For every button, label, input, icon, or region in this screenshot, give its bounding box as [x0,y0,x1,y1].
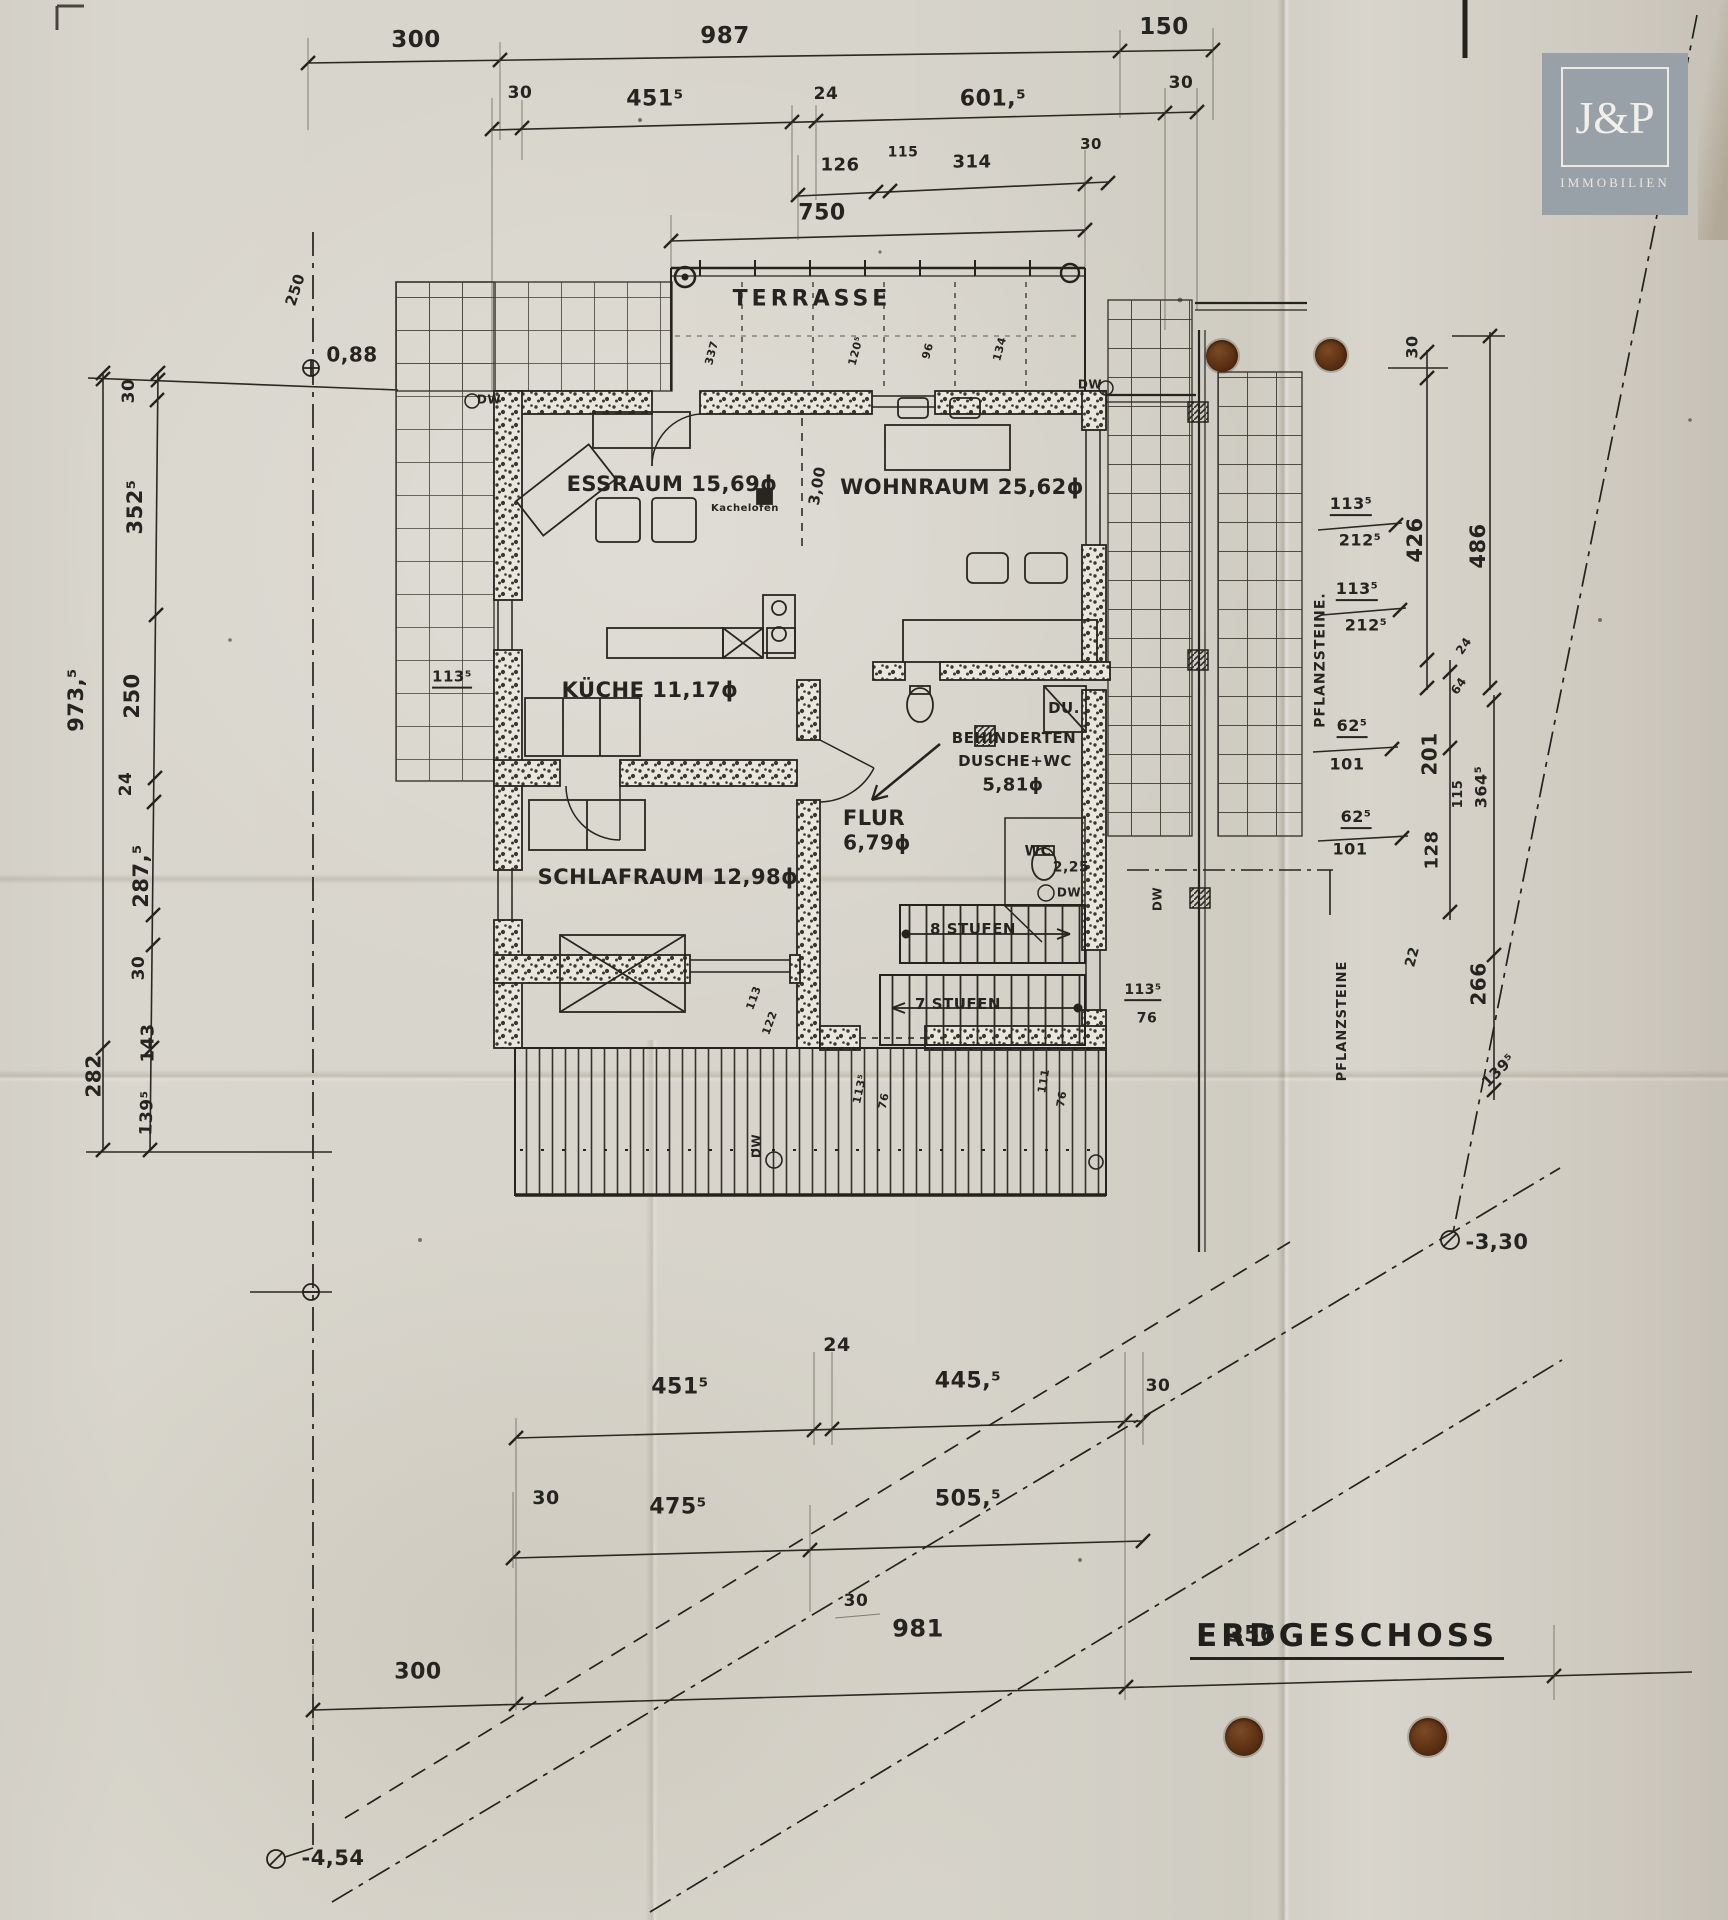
company-logo: J&P IMMOBILIEN [1542,53,1688,215]
punch-hole [1315,339,1347,371]
scanned-floorplan-page: 30098715030451⁵24601,⁵301261153143075030… [0,0,1728,1920]
terrasse-structure [671,260,1085,391]
punch-hole [1225,1718,1263,1756]
punch-hole [1206,340,1238,372]
patio-tiles [396,282,1302,836]
logo-name: J&P [1575,91,1654,144]
floor-title: ERDGESCHOSS [1190,1618,1504,1660]
deck [515,1048,1106,1195]
punch-hole [1409,1718,1447,1756]
logo-frame: J&P [1561,67,1669,167]
dimension-lines [86,50,1692,1710]
survey-markers [57,0,1465,1868]
dimension-ticks [96,43,1561,1717]
dw-symbols [465,381,1113,901]
stairs [880,905,1085,1045]
logo-subtitle: IMMOBILIEN [1560,175,1669,191]
